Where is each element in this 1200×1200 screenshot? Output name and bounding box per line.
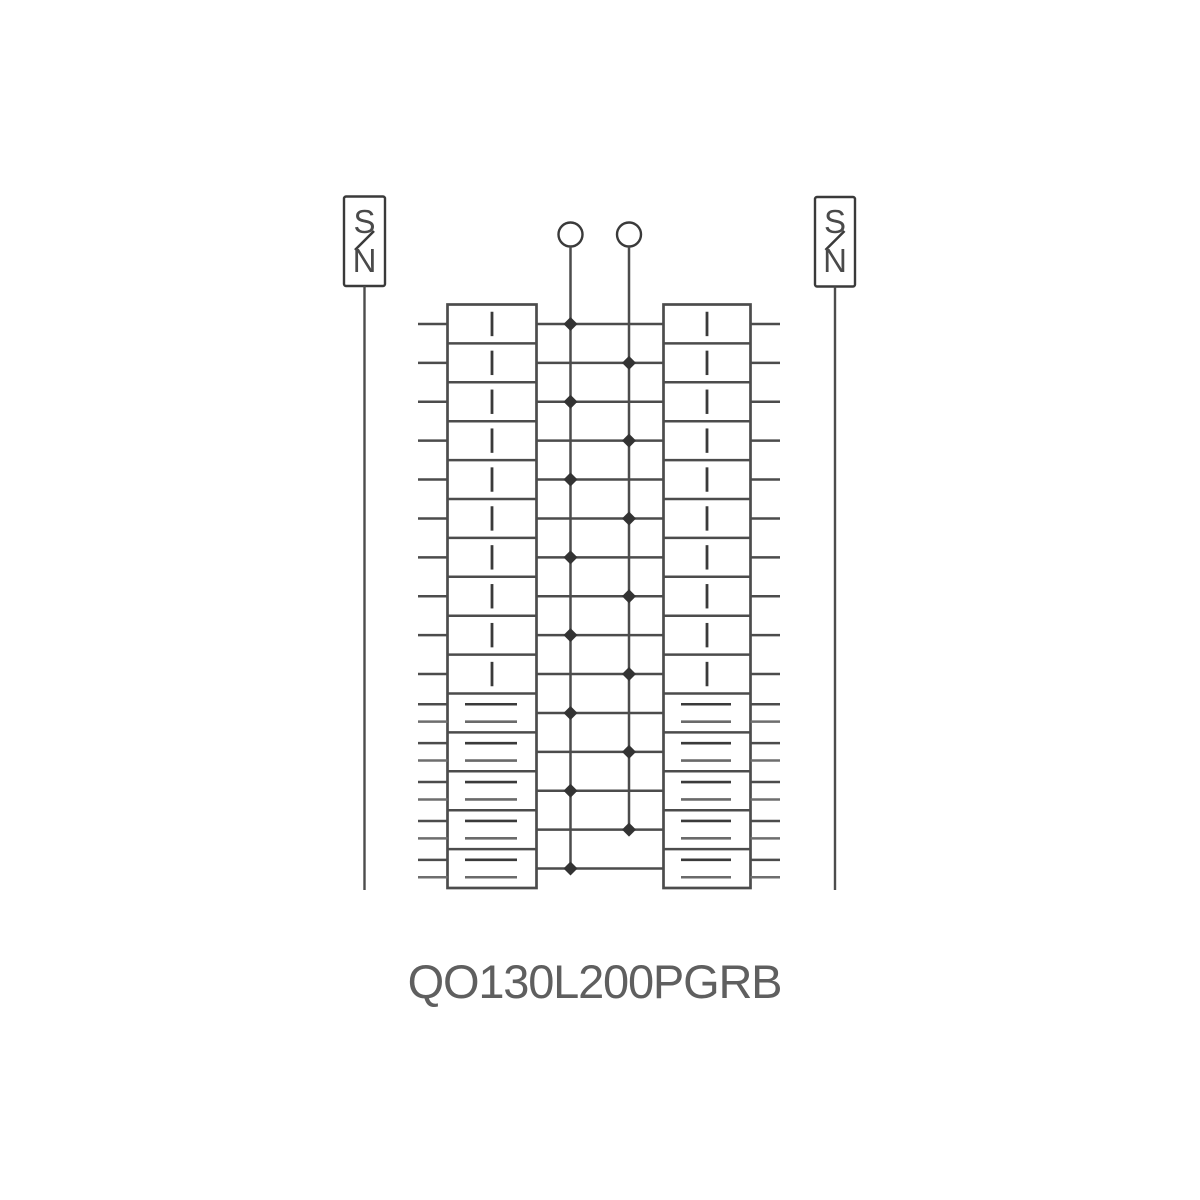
svg-text:N: N [353,242,377,279]
svg-text:N: N [823,242,847,279]
svg-text:QO130L200PGRB: QO130L200PGRB [408,955,782,1008]
